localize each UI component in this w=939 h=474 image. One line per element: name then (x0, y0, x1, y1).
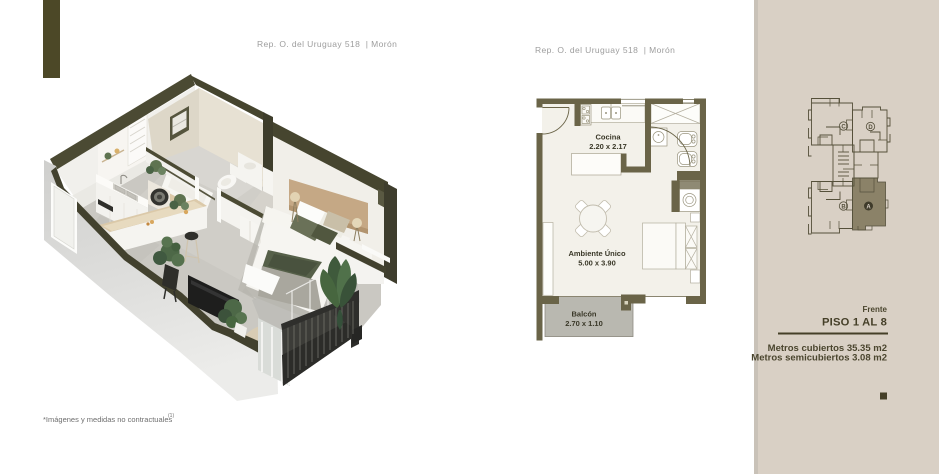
svg-text:2.70 x 1.10: 2.70 x 1.10 (565, 319, 603, 328)
svg-text:C: C (841, 125, 846, 131)
svg-text:Balcón: Balcón (571, 310, 596, 319)
svg-text:Metros semicubiertos 3.08 m2: Metros semicubiertos 3.08 m2 (751, 353, 887, 364)
svg-text:5.00 x 3.90: 5.00 x 3.90 (578, 259, 616, 268)
svg-text:Rep. O. del Uruguay 518 | Mor: Rep. O. del Uruguay 518 | Morón (257, 39, 397, 49)
svg-text:Ambiente Único: Ambiente Único (568, 249, 626, 258)
svg-text:PISO 1 AL 8: PISO 1 AL 8 (822, 317, 887, 329)
svg-text:A: A (866, 205, 871, 211)
svg-text:Cocina: Cocina (595, 133, 621, 142)
svg-text:B: B (841, 205, 846, 211)
svg-text:(1): (1) (168, 413, 174, 419)
svg-text:D: D (868, 125, 873, 131)
svg-text:2.20 x 2.17: 2.20 x 2.17 (589, 142, 627, 151)
svg-text:*Imágenes y medidas no contrac: *Imágenes y medidas no contractuales (43, 415, 172, 424)
svg-text:Frente: Frente (863, 305, 888, 314)
svg-text:Rep. O. del Uruguay 518 | Mor: Rep. O. del Uruguay 518 | Morón (535, 45, 675, 55)
